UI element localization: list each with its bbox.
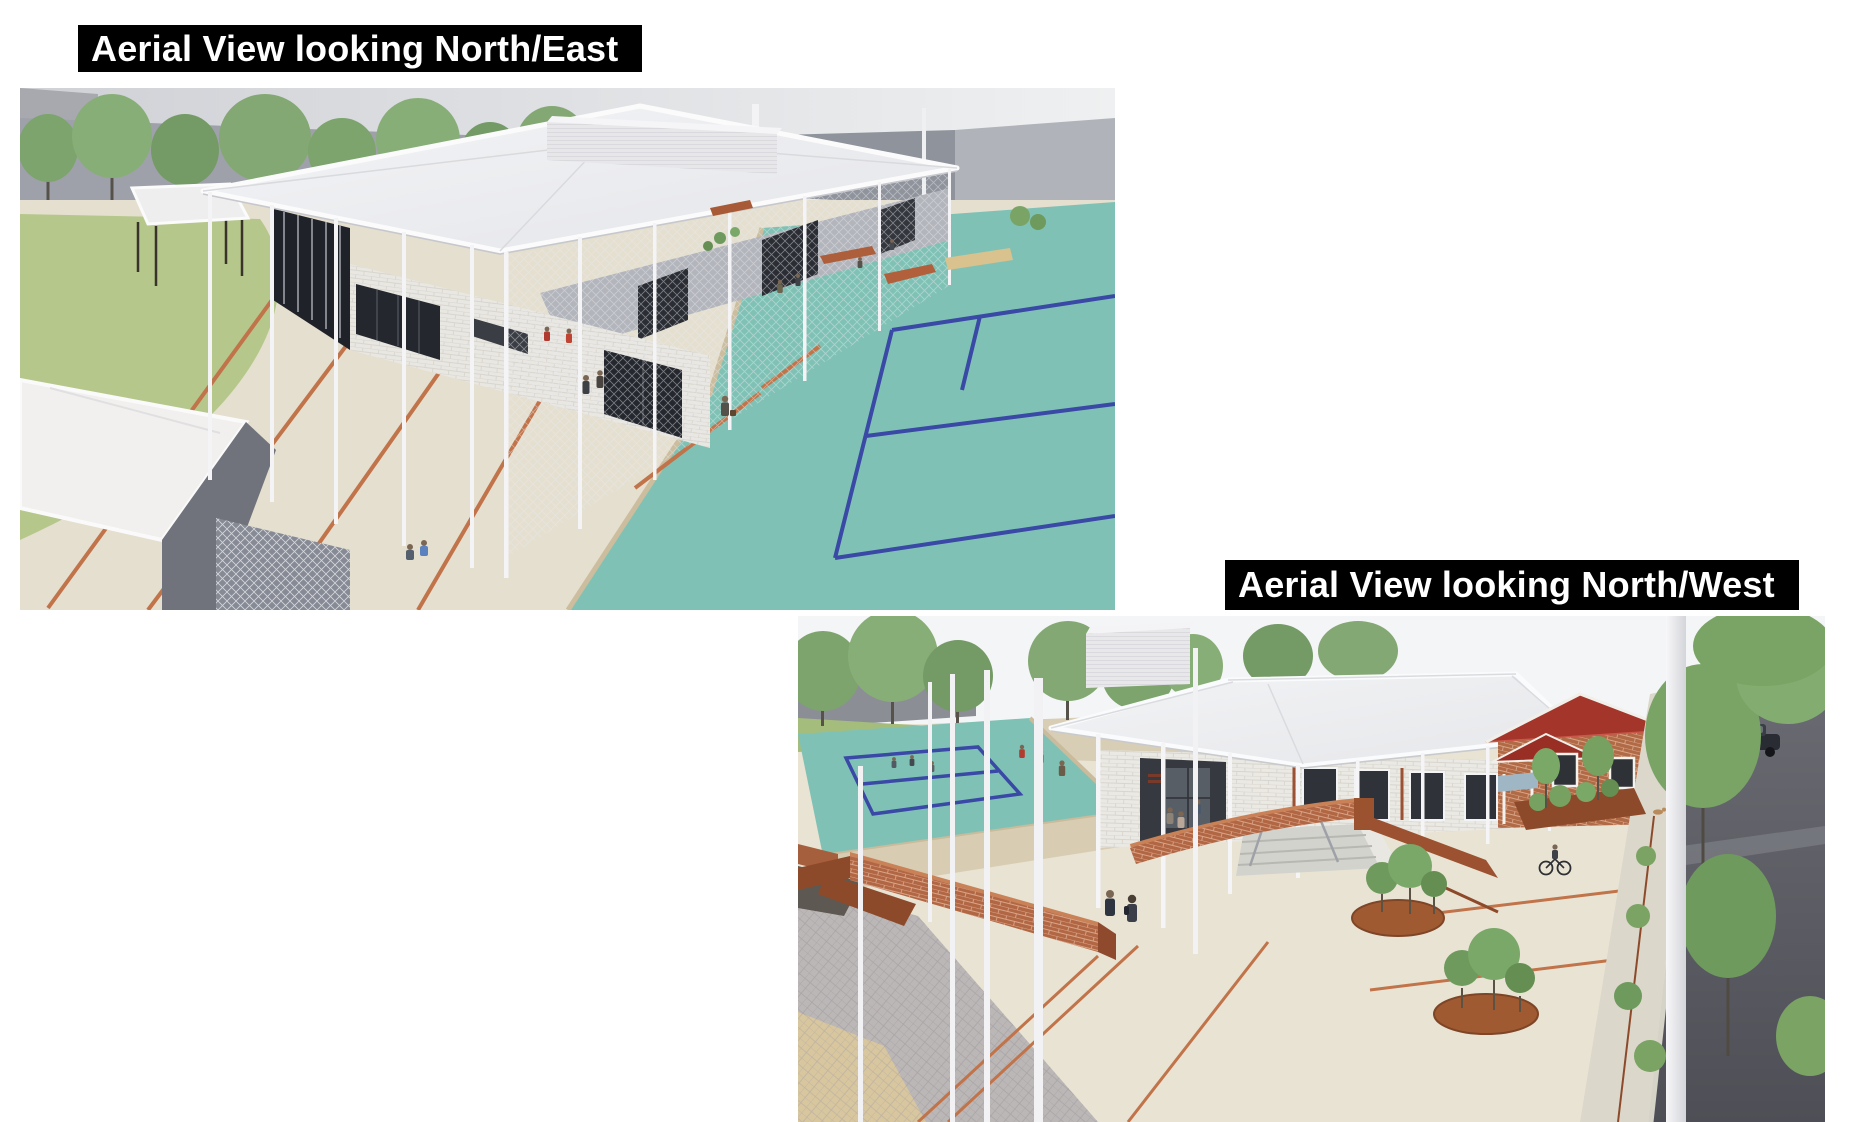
render-aerial-north-west (798, 616, 1825, 1122)
dog (1653, 809, 1663, 814)
caption-north-west-label: Aerial View looking North/West (1238, 564, 1775, 606)
caption-north-east-label: Aerial View looking North/East (91, 28, 618, 70)
caption-north-east: Aerial View looking North/East (78, 25, 642, 72)
render-aerial-north-east (20, 88, 1115, 610)
foreground-pole (1666, 616, 1686, 1122)
caption-north-west: Aerial View looking North/West (1225, 560, 1799, 610)
